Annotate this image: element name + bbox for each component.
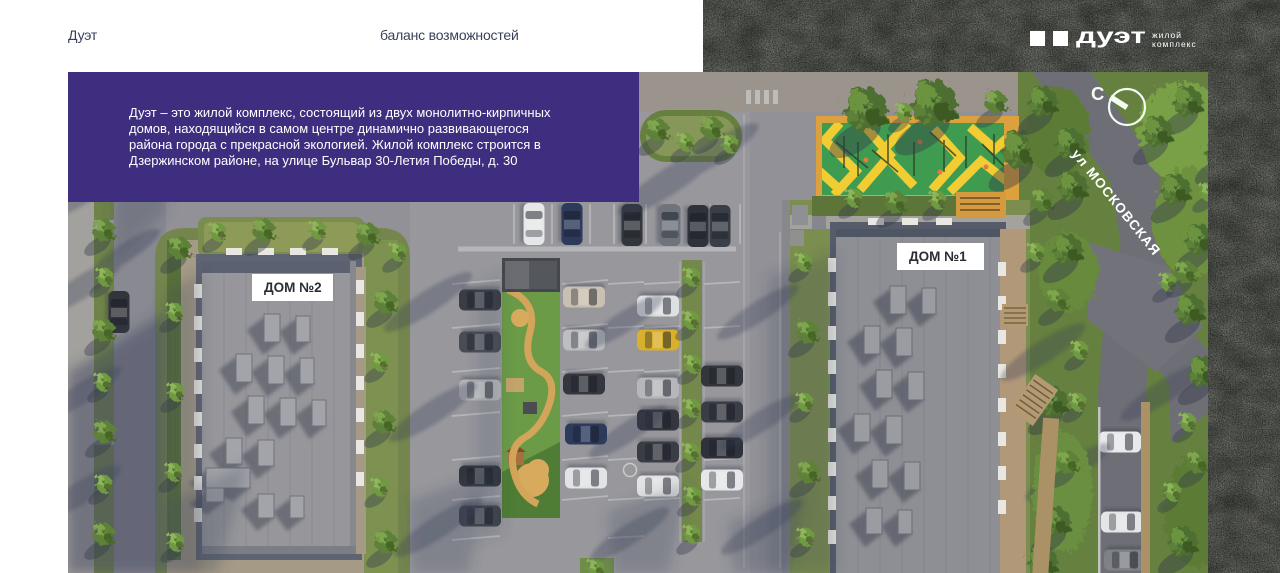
svg-text:комплекс: комплекс: [1152, 39, 1197, 49]
svg-text:ДОМ №2: ДОМ №2: [264, 280, 322, 295]
svg-text:ДОМ №1: ДОМ №1: [909, 249, 967, 264]
svg-text:дуэт: дуэт: [1076, 29, 1146, 48]
svg-text:С: С: [1091, 83, 1104, 104]
